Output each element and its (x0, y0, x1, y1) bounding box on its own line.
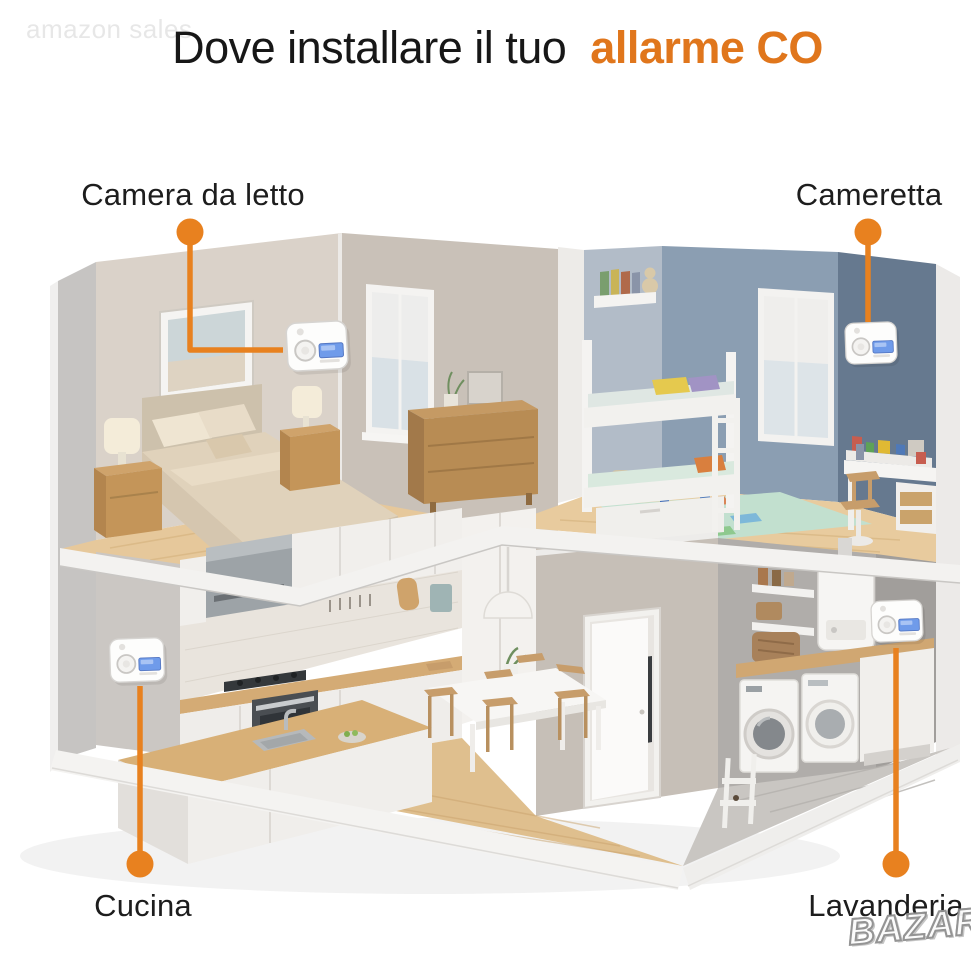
infographic-canvas: amazon sales Dove installare il tuo alla… (0, 0, 971, 960)
co-alarm-device-kids (845, 322, 900, 368)
title-highlight: allarme CO (590, 22, 823, 73)
co-alarm-device-bedroom (286, 320, 352, 375)
callout-dot-laundry (883, 851, 910, 878)
callout-dot-bedroom (177, 219, 204, 246)
title-prefix: Dove installare il tuo (172, 22, 578, 73)
left-exterior-wall (58, 262, 96, 760)
co-alarm-device-kitchen (109, 637, 167, 686)
room-kids (502, 246, 960, 581)
callout-dot-kitchen (127, 851, 154, 878)
kids-window (758, 288, 834, 446)
co-alarm-device-laundry (871, 600, 926, 646)
coffee-machine (430, 584, 452, 612)
label-camera-da-letto: Camera da letto (81, 177, 305, 213)
label-cucina: Cucina (94, 888, 192, 924)
dryer (802, 674, 858, 762)
washing-machine (740, 680, 798, 772)
label-cameretta: Cameretta (796, 177, 943, 213)
bookshelf (594, 268, 658, 309)
house-illustration (0, 0, 971, 960)
page-title: Dove installare il tuo allarme CO (12, 22, 971, 74)
callout-dot-kids (855, 219, 882, 246)
